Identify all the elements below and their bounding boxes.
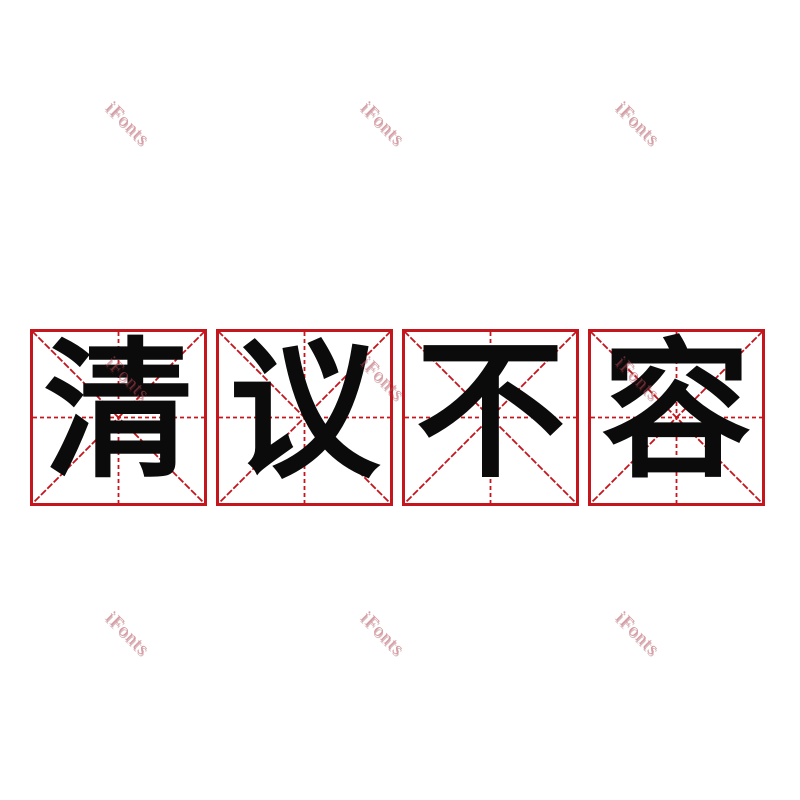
- character-yi: 议: [229, 337, 379, 487]
- font-preview-canvas: iFonts iFonts iFonts iFonts iFonts iFont…: [0, 0, 800, 800]
- ifonts-watermark: iFonts: [610, 97, 663, 150]
- mizige-cell-4: 容: [588, 329, 765, 506]
- character-bu: 不: [415, 337, 565, 487]
- ifonts-watermark: iFonts: [610, 607, 663, 660]
- ifonts-watermark: iFonts: [355, 97, 408, 150]
- ifonts-watermark: iFonts: [355, 607, 408, 660]
- ifonts-watermark: iFonts: [100, 607, 153, 660]
- mizige-cell-3: 不: [402, 329, 579, 506]
- ifonts-watermark: iFonts: [100, 97, 153, 150]
- character-grid-row: 清 议 不: [30, 329, 765, 506]
